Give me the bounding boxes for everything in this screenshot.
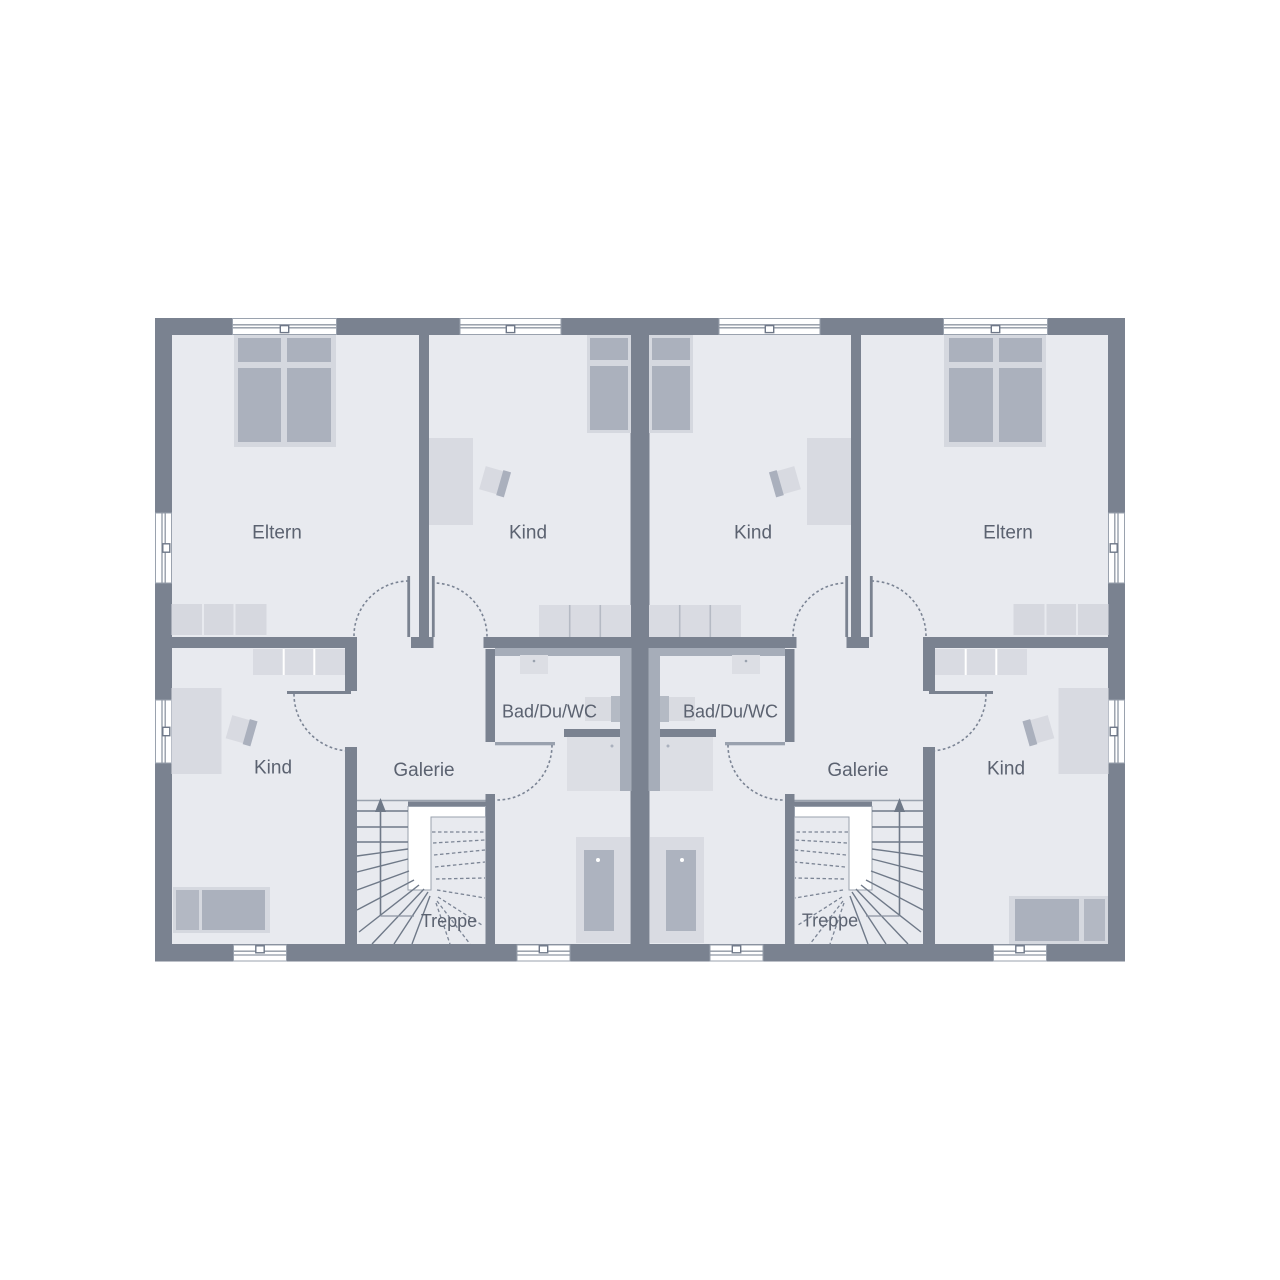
svg-text:Kind: Kind [734,523,772,544]
svg-text:Bad/Du/WC: Bad/Du/WC [683,702,778,722]
svg-text:Treppe: Treppe [802,911,858,931]
svg-text:Kind: Kind [509,523,547,544]
svg-text:Kind: Kind [254,758,292,779]
svg-text:Galerie: Galerie [827,760,888,781]
svg-text:Eltern: Eltern [983,523,1033,544]
svg-text:Eltern: Eltern [252,523,302,544]
svg-text:Kind: Kind [987,759,1025,780]
svg-text:Treppe: Treppe [421,911,477,931]
svg-text:Bad/Du/WC: Bad/Du/WC [502,702,597,722]
svg-text:Galerie: Galerie [393,760,454,781]
